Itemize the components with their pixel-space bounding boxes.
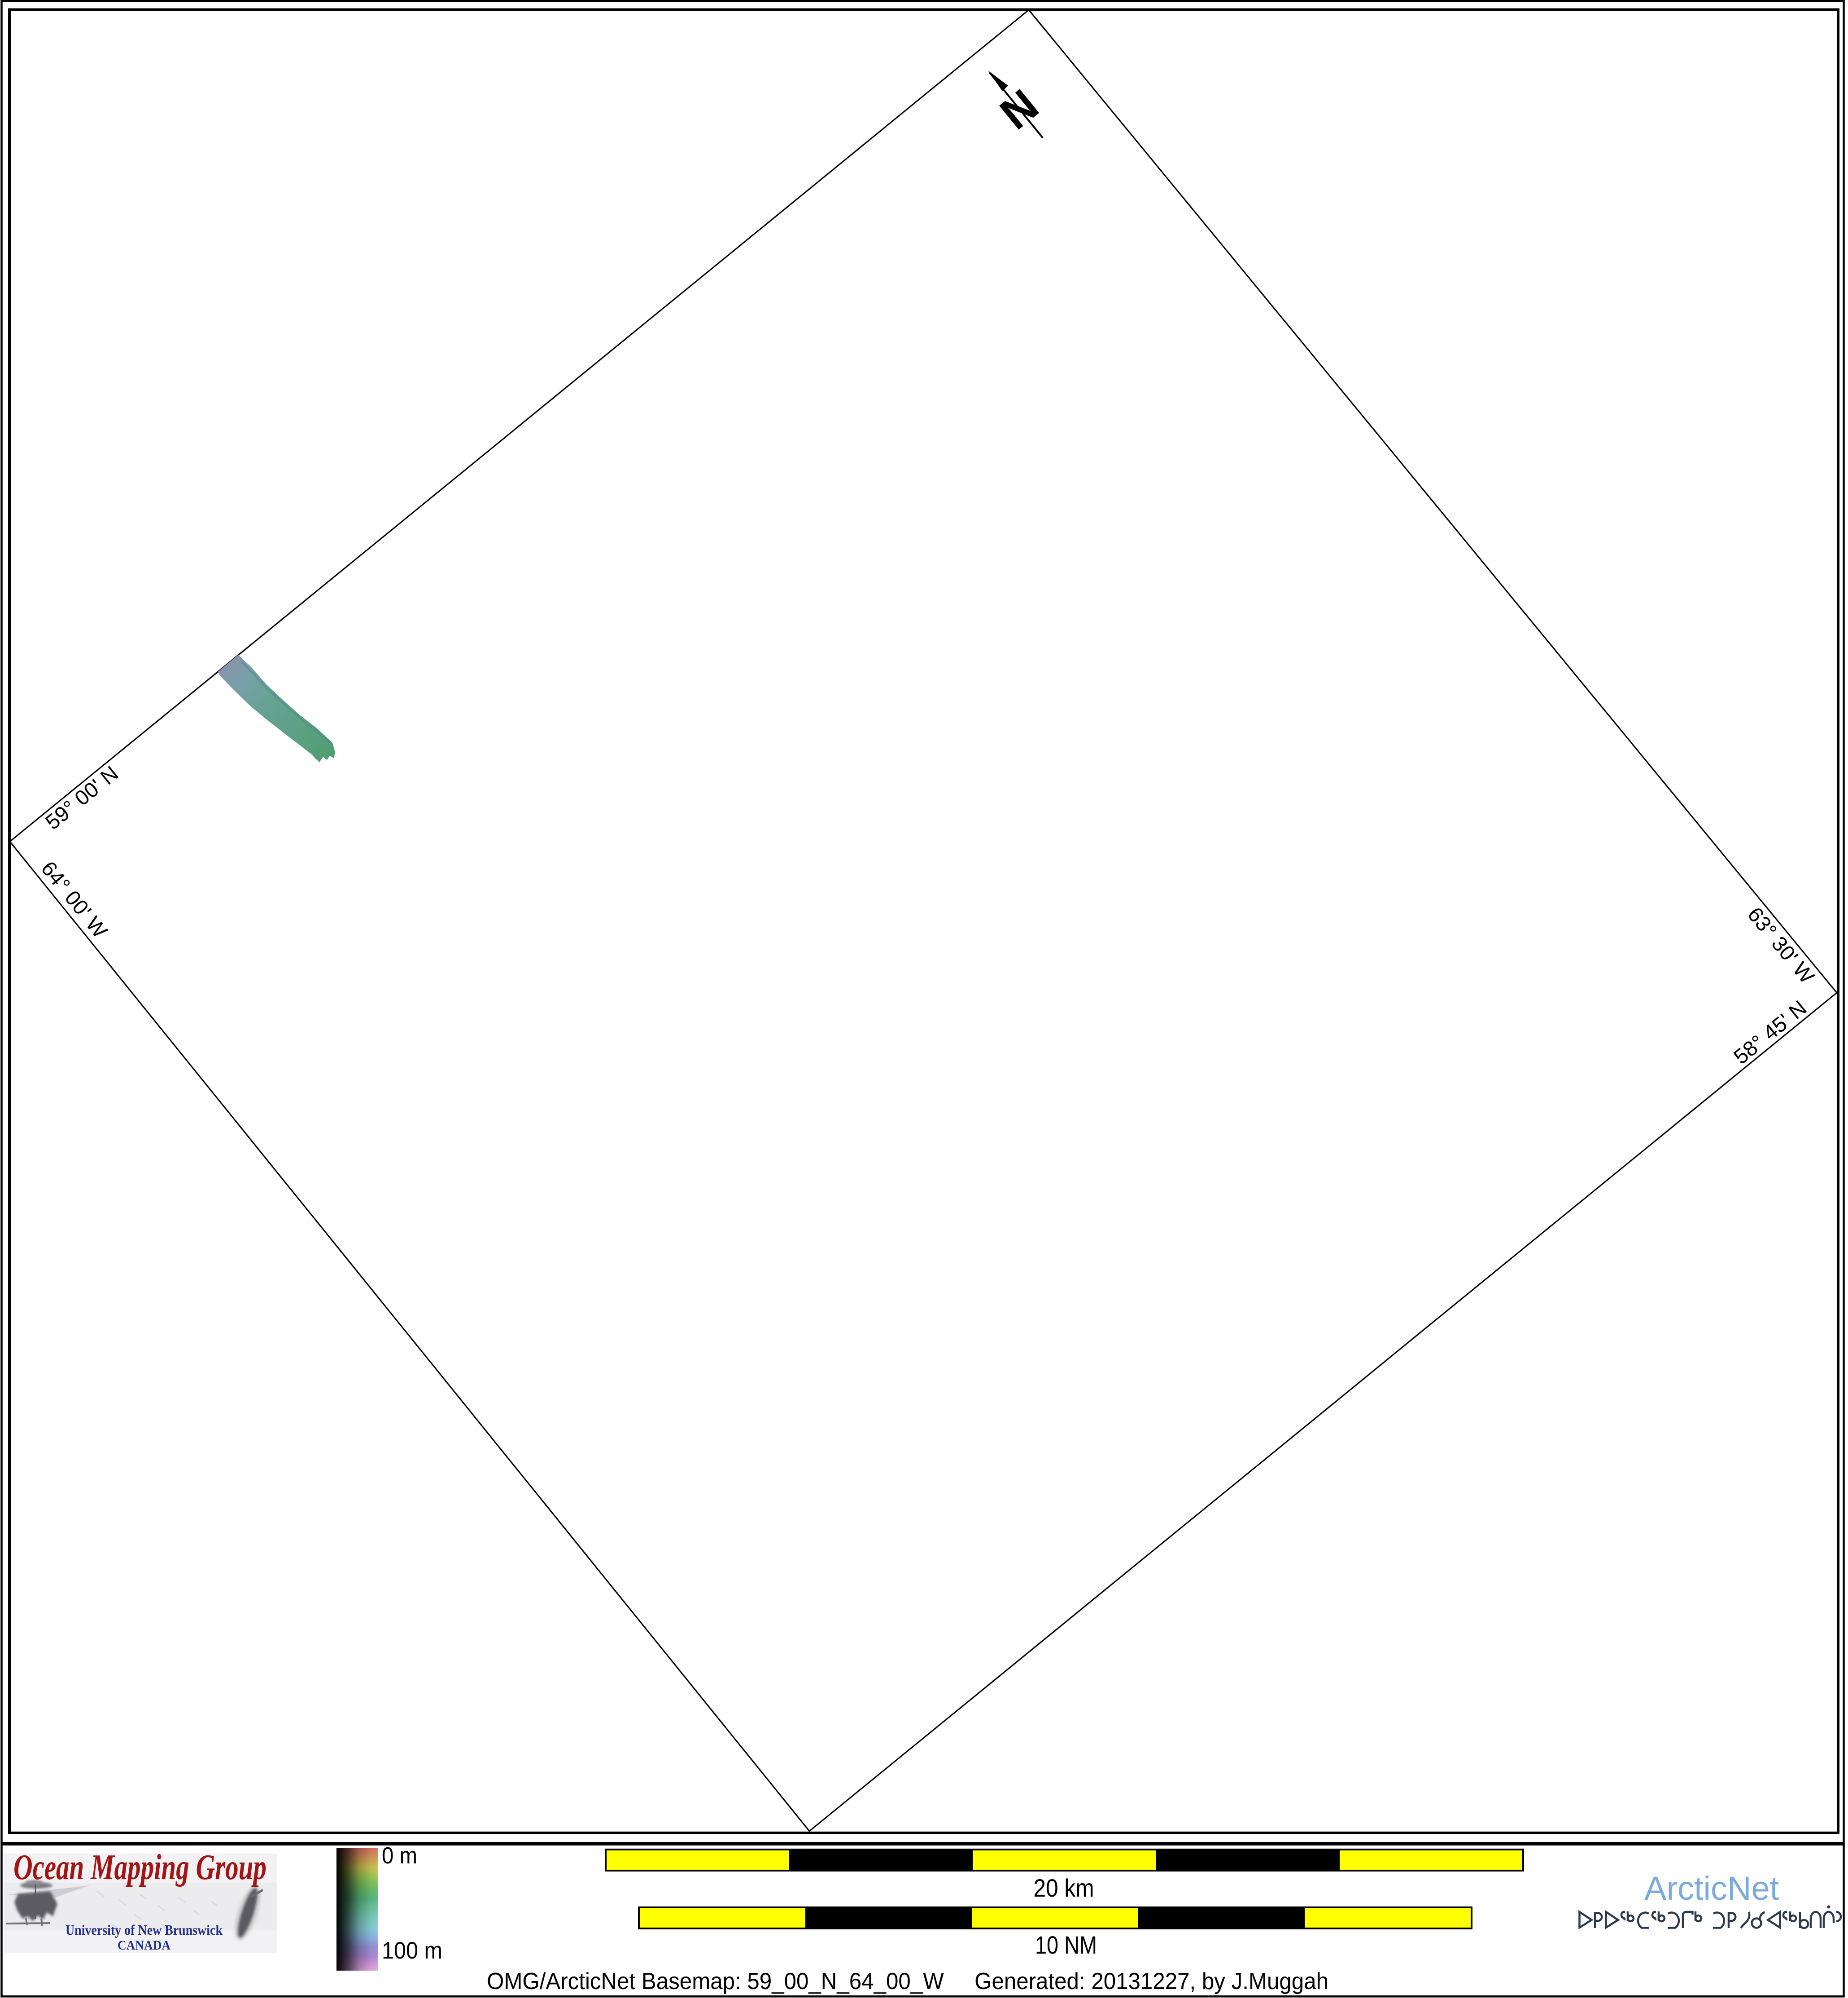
svg-text:0 m: 0 m [382,1843,417,1869]
svg-text:ArcticNet: ArcticNet [1644,1870,1779,1907]
svg-text:10 NM: 10 NM [1035,1931,1097,1959]
svg-text:CANADA: CANADA [118,1938,170,1953]
svg-text:University of New Brunswick: University of New Brunswick [66,1922,223,1938]
svg-text:100 m: 100 m [382,1937,442,1964]
svg-text:Ocean Mapping Group: Ocean Mapping Group [13,1848,266,1887]
svg-text:20 km: 20 km [1034,1874,1094,1902]
svg-text:OMG/ArcticNet Basemap: 59_00_N: OMG/ArcticNet Basemap: 59_00_N_64_00_W G… [487,1968,1328,1994]
